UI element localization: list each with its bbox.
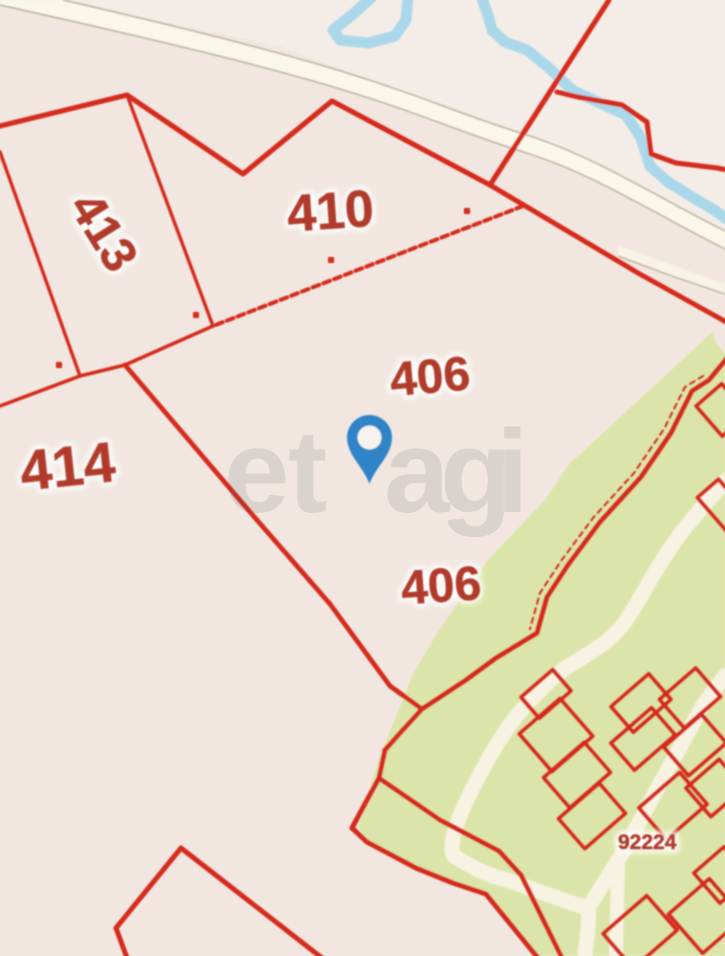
svg-text:406: 406 <box>388 347 472 407</box>
svg-text:92224: 92224 <box>618 831 677 854</box>
svg-text:414: 414 <box>17 430 119 504</box>
svg-text:406: 406 <box>399 557 483 615</box>
svg-text:410: 410 <box>285 180 376 244</box>
